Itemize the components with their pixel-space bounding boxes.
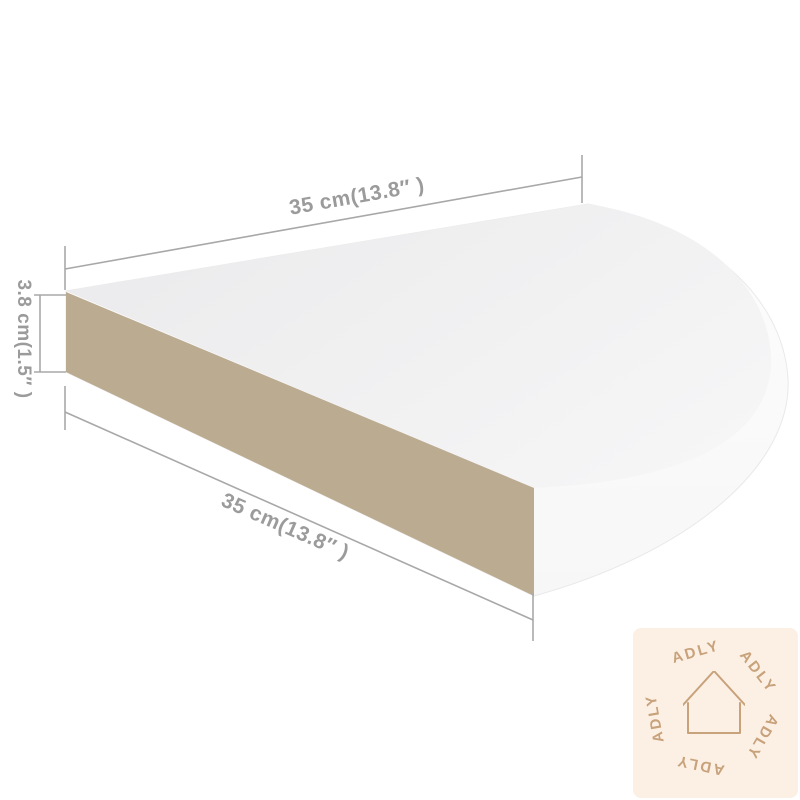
watermark-brand-text: ADLY bbox=[642, 692, 667, 744]
product-dimension-image: 35 cm(13.8″ ) 3.8 cm(1.5″ ) 35 cm(13.8″ … bbox=[0, 0, 800, 800]
brand-watermark: ADLY ADLY ADLY ADLY ADLY bbox=[633, 628, 798, 798]
house-outline-icon bbox=[683, 671, 745, 735]
height-dimension-label: 3.8 cm(1.5″ ) bbox=[12, 279, 34, 398]
watermark-brand-text: ADLY bbox=[742, 711, 781, 762]
watermark-brand-text: ADLY bbox=[674, 752, 726, 779]
watermark-brand-text: ADLY bbox=[670, 637, 722, 667]
height-dimension-left bbox=[34, 295, 66, 372]
